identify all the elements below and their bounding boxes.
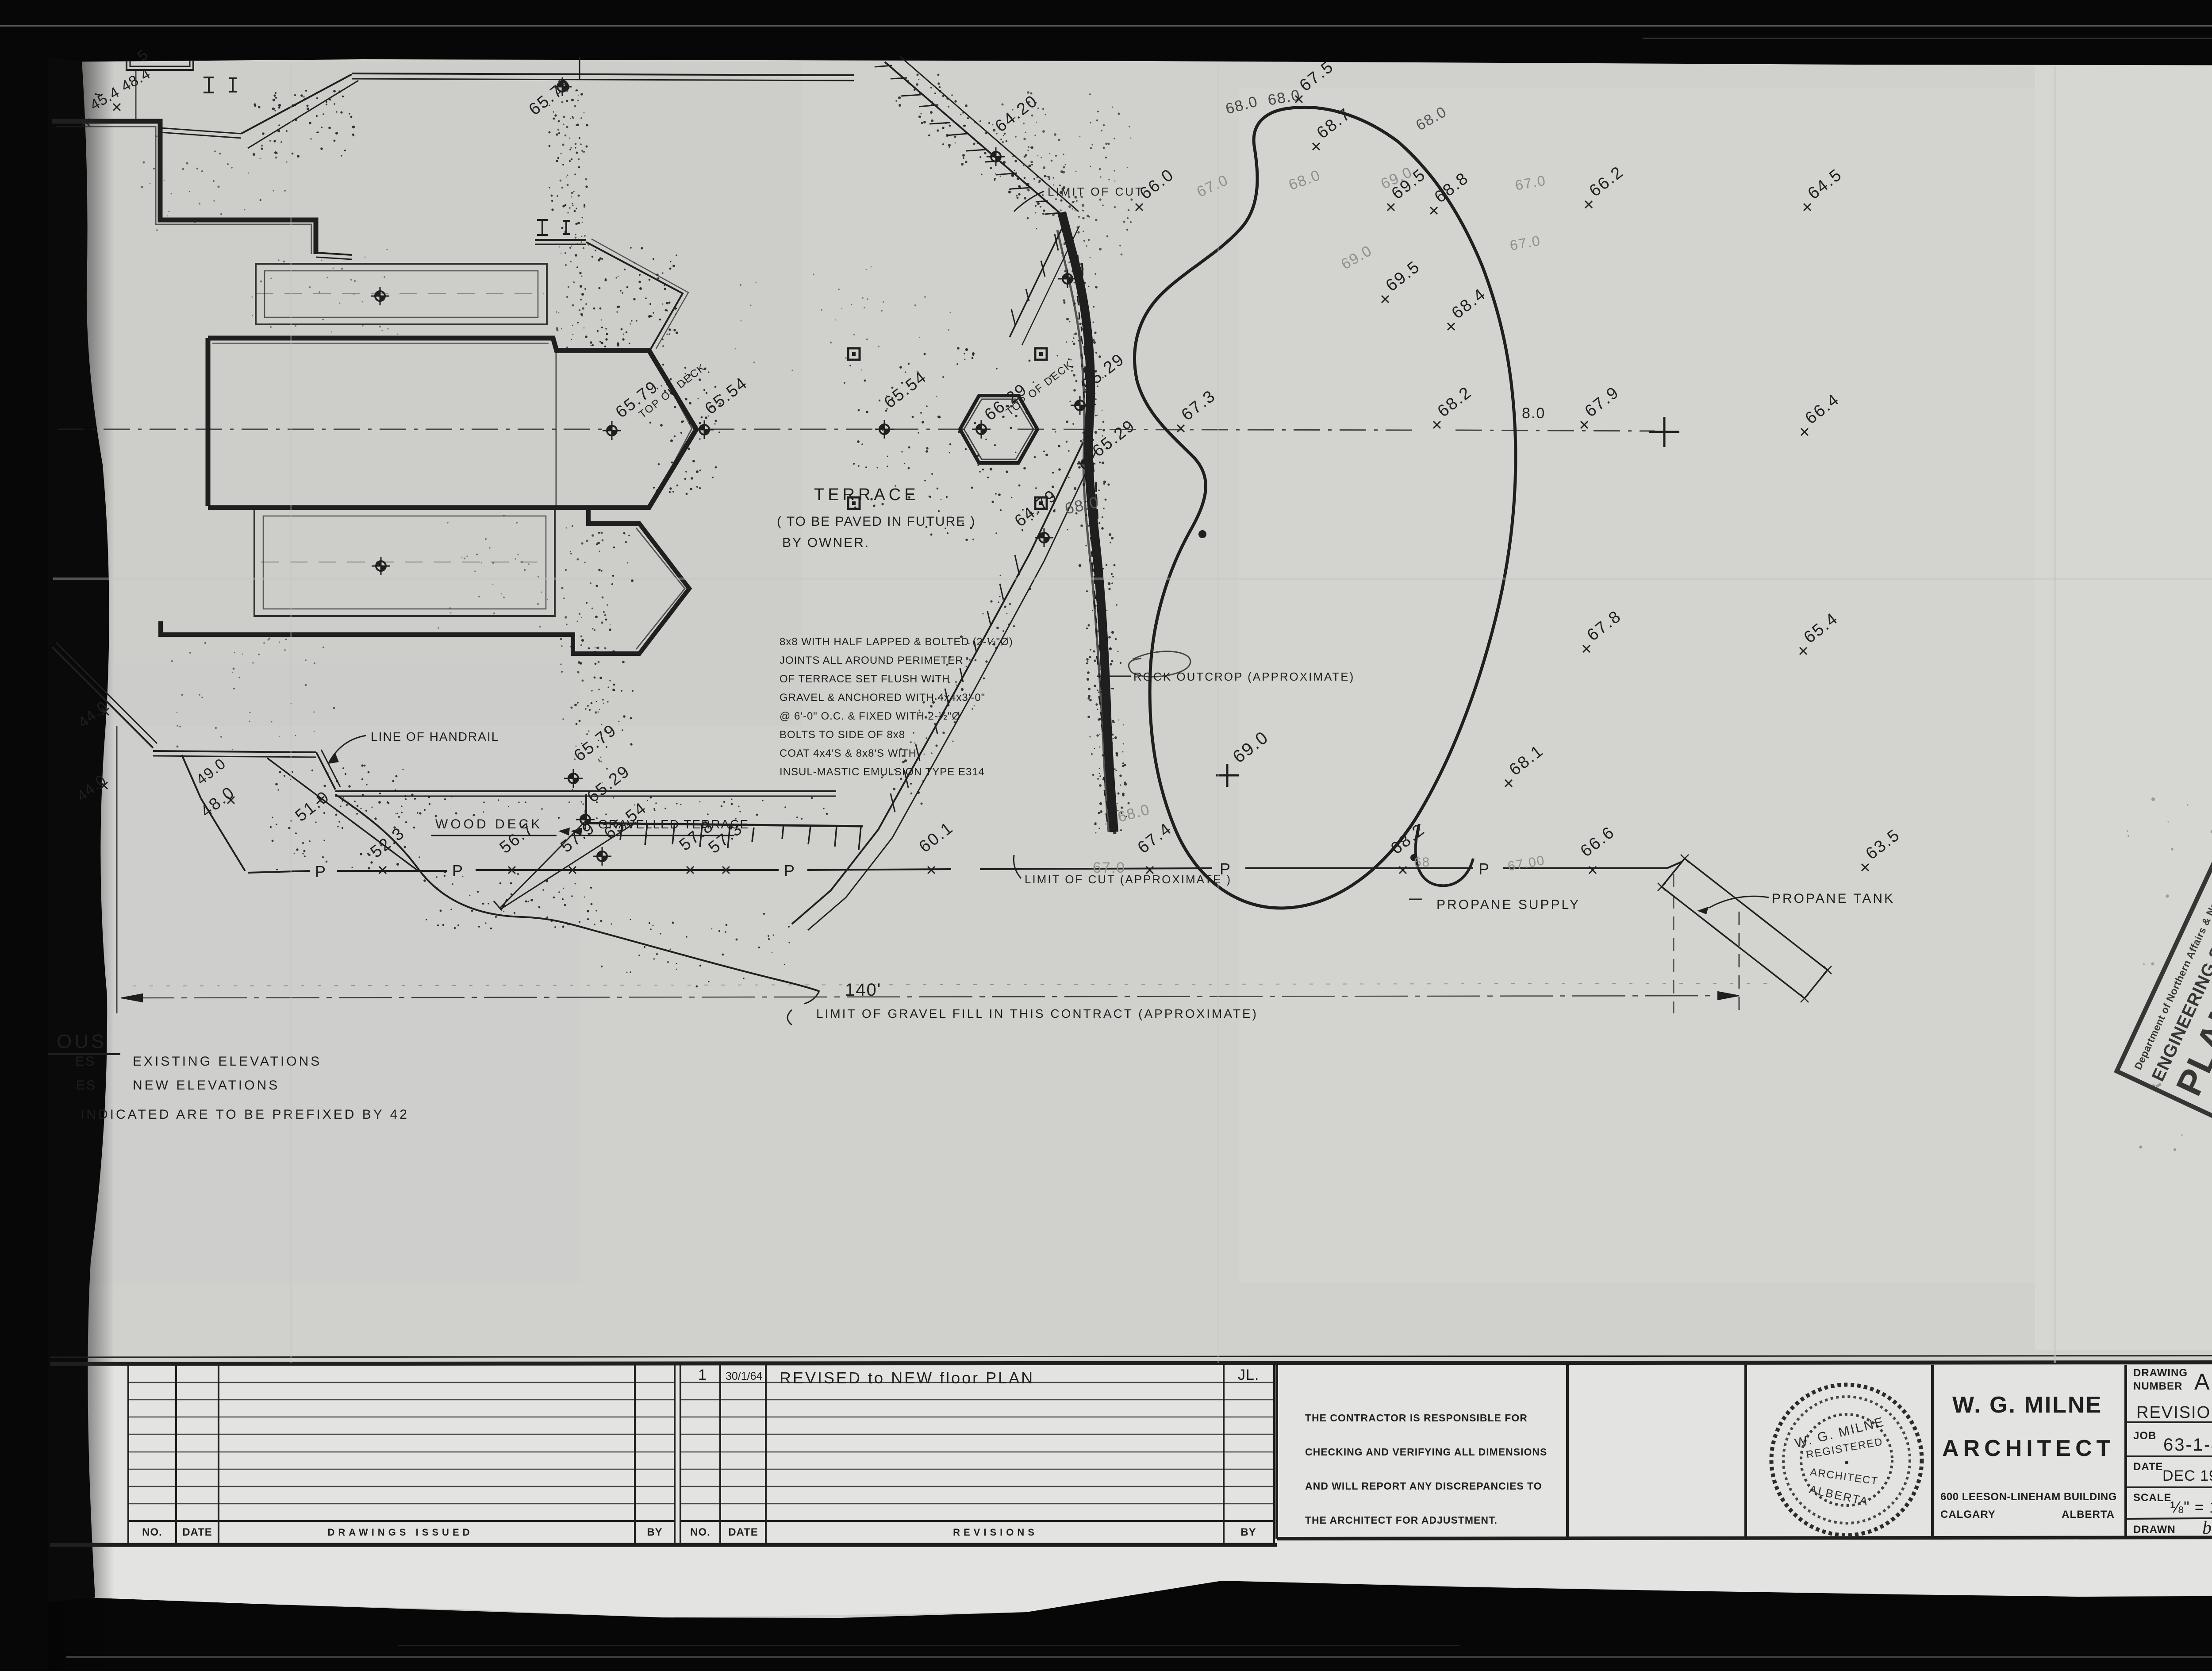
svg-text:BOLTS TO SIDE OF 8x8: BOLTS TO SIDE OF 8x8 <box>780 729 905 741</box>
svg-text:THE CONTRACTOR IS RESPONSIBLE: THE CONTRACTOR IS RESPONSIBLE FOR <box>1305 1412 1528 1424</box>
svg-text:REVISIOU .1.: REVISIOU .1. <box>2136 1403 2212 1422</box>
svg-text:8.0: 8.0 <box>1522 405 1545 422</box>
svg-text:P: P <box>1479 860 1489 878</box>
svg-text:DRAWINGS ISSUED: DRAWINGS ISSUED <box>327 1527 473 1538</box>
svg-text:8x8 WITH HALF LAPPED & BOLTED: 8x8 WITH HALF LAPPED & BOLTED (2-½"Ø) <box>780 636 1013 648</box>
svg-text:W. G. MILNE: W. G. MILNE <box>1952 1392 2102 1418</box>
svg-text:ROCK OUTCROP (APPROXIMATE): ROCK OUTCROP (APPROXIMATE) <box>1133 670 1355 683</box>
svg-text:ES: ES <box>75 1054 96 1069</box>
svg-text:LIMIT OF CUT (APPROXIMATE ): LIMIT OF CUT (APPROXIMATE ) <box>1025 873 1232 886</box>
svg-text:EXISTING ELEVATIONS: EXISTING ELEVATIONS <box>133 1054 322 1069</box>
svg-text:PROPANE TANK: PROPANE TANK <box>1772 891 1895 906</box>
svg-text:ALBERTA: ALBERTA <box>2062 1509 2115 1521</box>
svg-text:68: 68 <box>1414 855 1430 870</box>
svg-text:ES: ES <box>76 1078 96 1093</box>
svg-text:NEW ELEVATIONS: NEW ELEVATIONS <box>133 1078 280 1093</box>
svg-text:DEC 19: DEC 19 <box>2162 1467 2212 1484</box>
svg-text:DATE: DATE <box>728 1526 758 1538</box>
svg-text:GRAVEL & ANCHORED WITH 4x4x3'-: GRAVEL & ANCHORED WITH 4x4x3'-0" <box>780 692 985 704</box>
svg-text:LIMIT OF GRAVEL FILL IN THIS C: LIMIT OF GRAVEL FILL IN THIS CONTRACT (A… <box>816 1007 1258 1020</box>
svg-text:CALGARY: CALGARY <box>1940 1509 1996 1521</box>
svg-text:REVISED to NEW floor PLAN: REVISED to NEW floor PLAN <box>780 1369 1034 1387</box>
svg-text:BY: BY <box>647 1526 662 1538</box>
svg-text:DATE: DATE <box>2133 1461 2163 1473</box>
svg-text:( TO BE PAVED IN FUTURE ): ( TO BE PAVED IN FUTURE ) <box>777 514 976 529</box>
svg-text:ARCHITECT: ARCHITECT <box>1942 1436 2115 1461</box>
svg-text:P: P <box>1220 860 1230 878</box>
svg-text:REVISIONS: REVISIONS <box>953 1527 1038 1538</box>
svg-text:INDICATED ARE TO BE PREFIXED B: INDICATED ARE TO BE PREFIXED BY 42 <box>81 1107 409 1122</box>
svg-text:SCALE: SCALE <box>2133 1492 2171 1504</box>
svg-text:67.0: 67.0 <box>1093 859 1125 876</box>
svg-text:1: 1 <box>698 1367 707 1383</box>
svg-text:LIMIT OF CUT: LIMIT OF CUT <box>1048 185 1144 198</box>
svg-text:BY: BY <box>1240 1526 1256 1538</box>
svg-text:THE ARCHITECT FOR ADJUSTMENT.: THE ARCHITECT FOR ADJUSTMENT. <box>1305 1514 1498 1526</box>
svg-text:DRAWN: DRAWN <box>2133 1524 2176 1536</box>
svg-text:140': 140' <box>845 980 881 1000</box>
svg-text:OF TERRACE SET FLUSH WITH: OF TERRACE SET FLUSH WITH <box>780 673 950 685</box>
svg-text:bob boll: bob boll <box>2202 1518 2212 1538</box>
svg-text:NUMBER: NUMBER <box>2133 1380 2182 1392</box>
svg-text:JL.: JL. <box>1238 1367 1259 1383</box>
svg-text:TERRACE: TERRACE <box>814 485 919 504</box>
svg-text:JOINTS ALL AROUND PERIMETER: JOINTS ALL AROUND PERIMETER <box>780 655 964 666</box>
svg-text:63-1-4-2: 63-1-4-2 <box>2163 1435 2212 1455</box>
svg-text:CHECKING AND VERIFYING ALL DIM: CHECKING AND VERIFYING ALL DIMENSIONS <box>1305 1446 1547 1458</box>
svg-text:600 LEESON-LINEHAM BUILDING: 600 LEESON-LINEHAM BUILDING <box>1940 1491 2117 1503</box>
svg-text:LINE OF HANDRAIL: LINE OF HANDRAIL <box>371 730 499 743</box>
svg-text:COAT 4x4'S & 8x8'S WITH: COAT 4x4'S & 8x8'S WITH <box>780 747 917 759</box>
svg-text:P: P <box>315 862 326 881</box>
svg-text:NO.: NO. <box>690 1526 710 1538</box>
svg-text:30/1/64: 30/1/64 <box>726 1370 763 1382</box>
svg-text:P: P <box>784 862 795 880</box>
svg-text:JOB: JOB <box>2133 1430 2156 1442</box>
svg-text:AND WILL REPORT ANY DISCREPANC: AND WILL REPORT ANY DISCREPANCIES TO <box>1305 1480 1542 1492</box>
svg-text:A3·11: A3·11 <box>2194 1369 2212 1395</box>
svg-text:PROPANE SUPPLY: PROPANE SUPPLY <box>1436 897 1580 912</box>
svg-text:DRAWING: DRAWING <box>2133 1367 2188 1379</box>
svg-text:NO.: NO. <box>142 1526 162 1538</box>
svg-text:P: P <box>452 862 463 880</box>
svg-text:INSUL-MASTIC EMULSION TYPE E31: INSUL-MASTIC EMULSION TYPE E314 <box>780 766 985 778</box>
svg-text:●: ● <box>1844 1458 1849 1467</box>
svg-text:@ 6'-0" O.C. & FIXED WITH 2-½": @ 6'-0" O.C. & FIXED WITH 2-½"Ø <box>780 710 960 722</box>
svg-text:OUS: OUS <box>57 1031 107 1052</box>
svg-text:BY OWNER.: BY OWNER. <box>782 535 870 550</box>
svg-text:⅛" = 1'-0": ⅛" = 1'-0" <box>2170 1498 2212 1516</box>
svg-text:DATE: DATE <box>182 1526 212 1538</box>
